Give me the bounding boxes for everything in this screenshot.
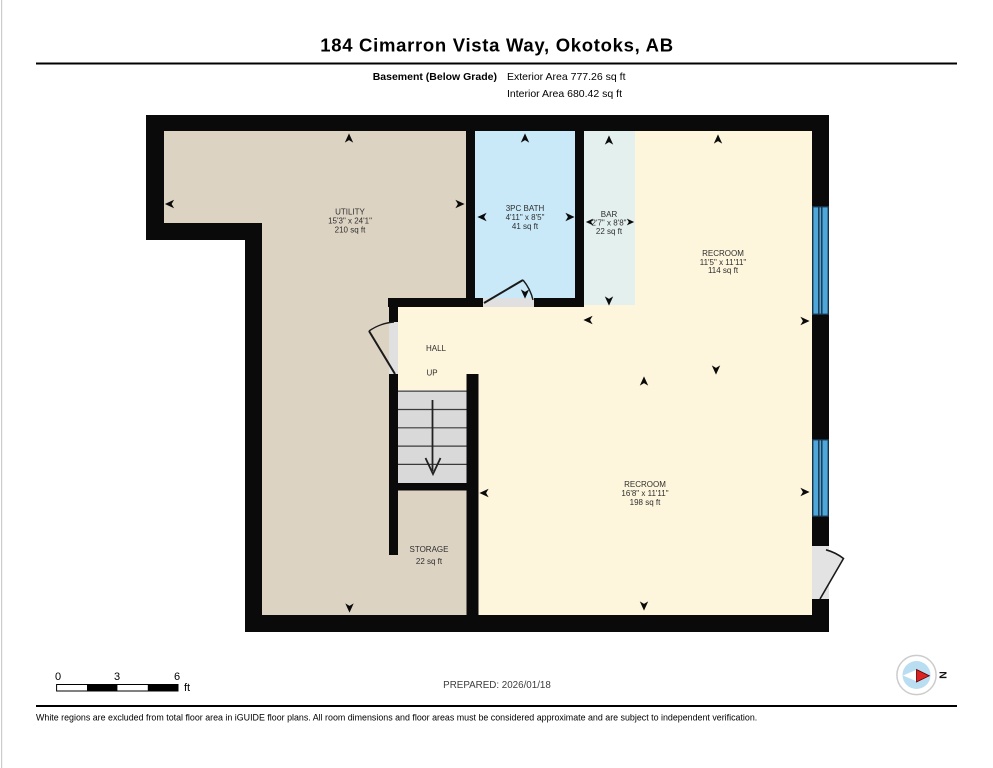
svg-text:16'8" x 11'11": 16'8" x 11'11" xyxy=(621,489,668,498)
svg-text:ft: ft xyxy=(184,682,190,694)
svg-text:4'11" x 8'5": 4'11" x 8'5" xyxy=(506,213,545,222)
svg-text:White regions are excluded fro: White regions are excluded from total fl… xyxy=(36,713,757,723)
svg-text:0: 0 xyxy=(55,671,61,683)
svg-text:HALL: HALL xyxy=(426,344,447,353)
svg-text:3PC BATH: 3PC BATH xyxy=(506,204,545,213)
svg-text:UP: UP xyxy=(426,369,437,378)
svg-text:198 sq ft: 198 sq ft xyxy=(630,498,661,507)
svg-text:N: N xyxy=(937,671,949,679)
svg-text:210 sq ft: 210 sq ft xyxy=(335,225,366,234)
svg-text:22 sq ft: 22 sq ft xyxy=(416,557,443,566)
svg-text:STORAGE: STORAGE xyxy=(410,545,449,554)
svg-text:Basement (Below Grade): Basement (Below Grade) xyxy=(373,71,497,83)
svg-text:Exterior Area 777.26 sq ft: Exterior Area 777.26 sq ft xyxy=(507,71,626,83)
svg-text:RECROOM: RECROOM xyxy=(702,249,744,258)
svg-text:RECROOM: RECROOM xyxy=(624,480,666,489)
svg-text:UTILITY: UTILITY xyxy=(335,208,365,217)
svg-text:6: 6 xyxy=(174,671,180,683)
svg-text:Interior Area 680.42 sq ft: Interior Area 680.42 sq ft xyxy=(507,88,622,100)
svg-text:15'3" x 24'1": 15'3" x 24'1" xyxy=(328,217,372,226)
svg-text:184 Cimarron Vista Way, Okotok: 184 Cimarron Vista Way, Okotoks, AB xyxy=(320,35,674,56)
svg-text:114 sq ft: 114 sq ft xyxy=(708,266,739,275)
svg-text:PREPARED: 2026/01/18: PREPARED: 2026/01/18 xyxy=(443,680,551,691)
svg-text:3: 3 xyxy=(114,671,120,683)
svg-text:22 sq ft: 22 sq ft xyxy=(596,227,623,236)
svg-text:41 sq ft: 41 sq ft xyxy=(512,222,539,231)
